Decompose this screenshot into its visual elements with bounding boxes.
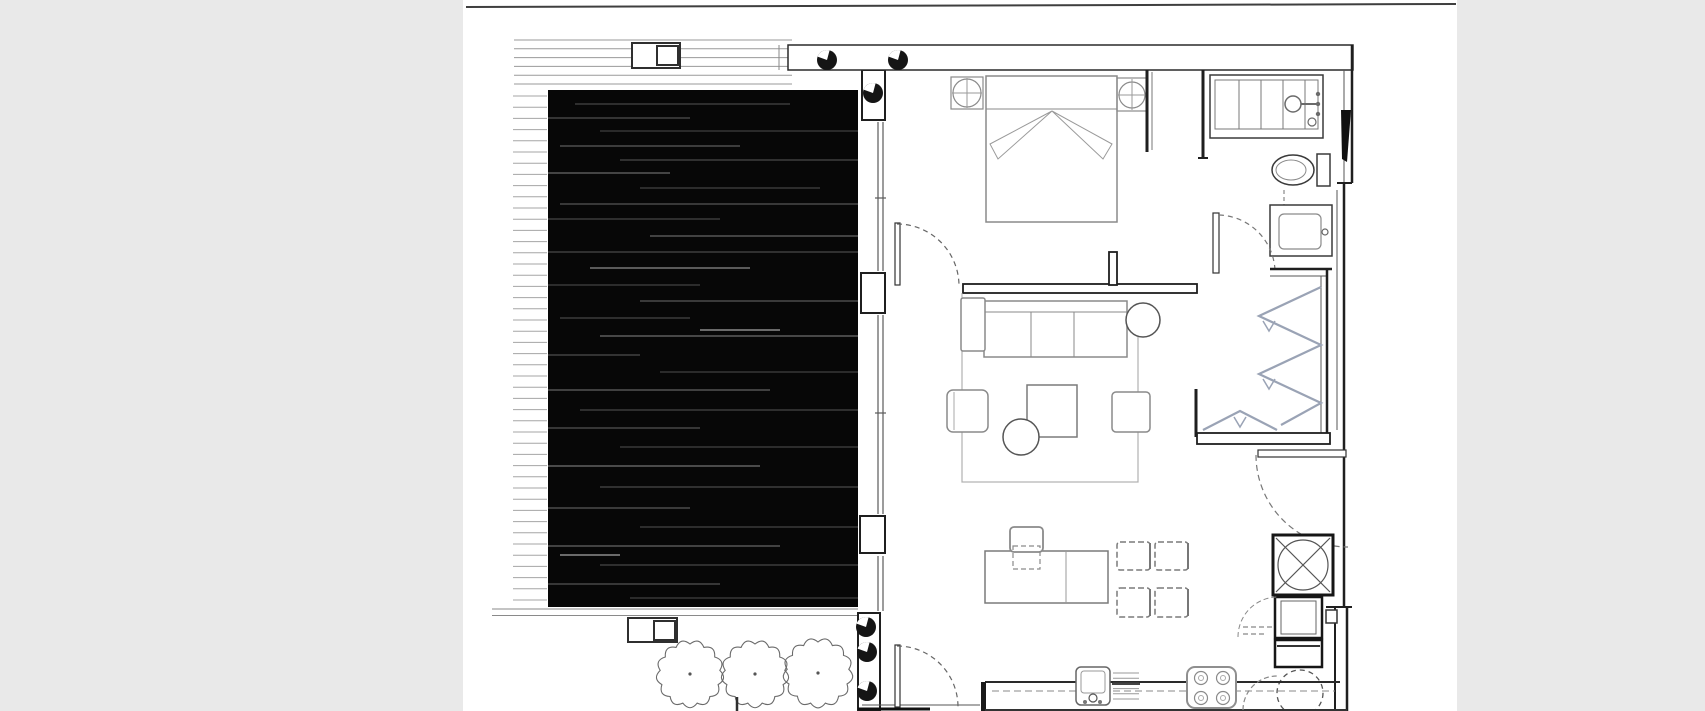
counter-end-cap [981, 682, 986, 711]
floor-plan-drawing [0, 0, 1705, 711]
sofa [984, 301, 1127, 357]
sink-knob [1083, 700, 1087, 704]
closet-south-wall [1197, 433, 1330, 444]
deck-planter-bottom-inner [654, 621, 675, 640]
south-door-leaf [895, 645, 900, 707]
bedroom-door-leaf [895, 223, 900, 285]
tree-3-trunk [816, 671, 819, 674]
tree-1-trunk [688, 672, 691, 675]
wall-stub [1109, 252, 1117, 285]
floor-plan-page [0, 0, 1705, 711]
shower-knob [1316, 92, 1320, 96]
north-wall-band [788, 45, 1353, 70]
wall-pier [861, 273, 885, 313]
tree-2-trunk [753, 672, 756, 675]
wall-pier [860, 516, 885, 553]
deck-planter-top-inner [657, 46, 678, 65]
toilet-tank [1317, 154, 1330, 186]
sofa-armrest [961, 298, 985, 351]
sink-knob [1098, 700, 1102, 704]
bedroom-south-wall [963, 284, 1197, 293]
armchair [947, 390, 988, 432]
coffee-table [1003, 419, 1039, 455]
kitchen-cabinet [1275, 640, 1322, 667]
entry-door-leaf [1258, 450, 1346, 457]
dining-table [985, 551, 1108, 603]
shower-knob [1316, 102, 1320, 106]
floor-lamp [1126, 303, 1160, 337]
toilet-bowl [1272, 155, 1314, 185]
bath-door-leaf [1213, 213, 1219, 273]
side-table [1112, 392, 1150, 432]
shower-knob [1316, 112, 1320, 116]
dining-chair-back [1010, 527, 1043, 552]
east-wall-stub [1326, 610, 1337, 623]
fridge [1275, 597, 1322, 638]
deck-shadow [548, 90, 858, 607]
